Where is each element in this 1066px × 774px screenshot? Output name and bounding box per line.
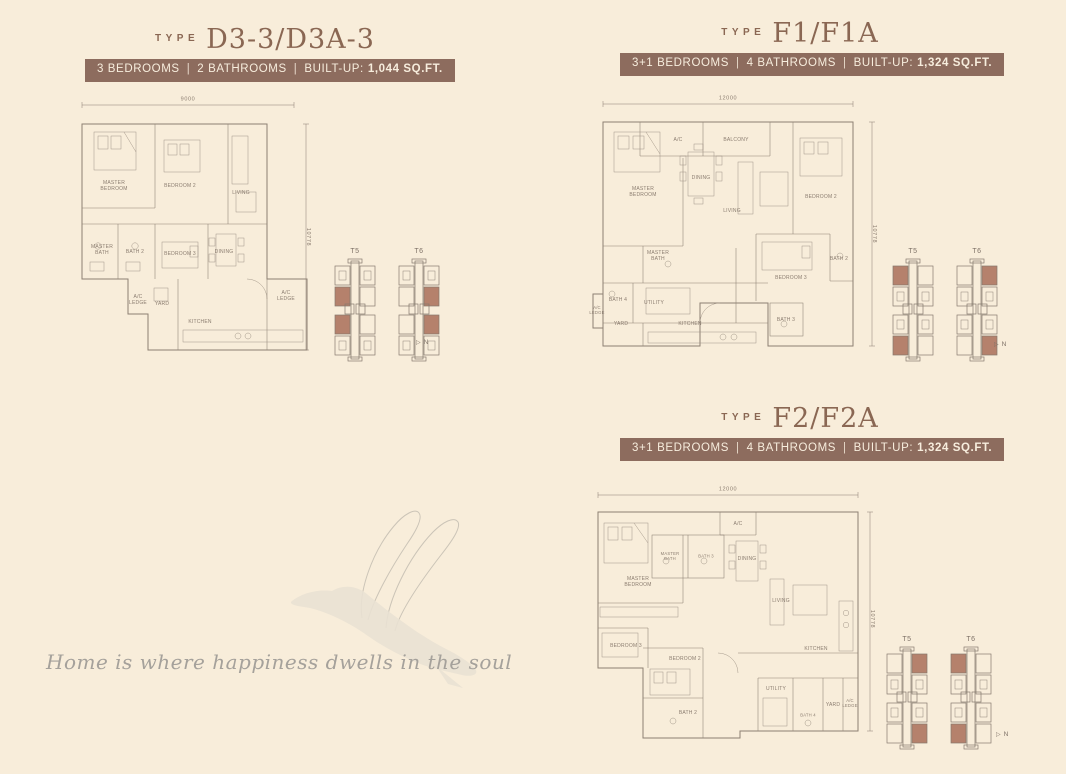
keyplan-tower-t6: T6 (948, 636, 994, 755)
north-label: N (1002, 341, 1008, 348)
plan-title: TYPEF1/F1A (620, 20, 980, 47)
spec-separator: | (294, 63, 298, 75)
keyplan-tower-t5: T5 (332, 248, 378, 367)
keyplan-tower-t6: T6 (954, 248, 1000, 367)
room-label: YARD (826, 702, 840, 708)
room-label: KITCHEN (678, 321, 701, 327)
room-label: BATH 3 (698, 553, 714, 558)
bedrooms-spec: 3 BEDROOMS (97, 63, 180, 75)
room-label: MASTER BEDROOM (97, 180, 131, 193)
bathrooms-spec: 4 BATHROOMS (747, 442, 836, 454)
builtup-value: 1,324 SQ.FT. (917, 57, 992, 69)
type-name: F1/F1A (772, 18, 878, 49)
type-label: TYPE (721, 27, 765, 38)
floorplan-f1: 12000 10778 A/C BALCONY MASTER BEDROOM D… (588, 96, 878, 370)
room-label: BALCONY (723, 137, 748, 143)
room-label: BEDROOM 3 (775, 275, 807, 281)
floorplan-d3: 9000 10778 MASTER BEDROOM BEDROOM 2 LIVI… (78, 96, 313, 368)
room-label: YARD (614, 321, 628, 327)
room-label: MASTER BATH (656, 551, 684, 562)
floorplan-drawing-d3 (78, 96, 313, 368)
spec-badge: 3+1 BEDROOMS|4 BATHROOMS|BUILT-UP:1,324 … (620, 438, 1004, 461)
room-label: A/C LEDGE (128, 294, 148, 307)
north-label: N (1004, 731, 1010, 738)
room-label: A/C LEDGE (588, 305, 606, 316)
north-arrow-icon: ▷ (416, 340, 422, 346)
plan-header-f1: TYPEF1/F1A 3+1 BEDROOMS|4 BATHROOMS|BUIL… (620, 20, 980, 76)
north-arrow-icon: ▷ (996, 732, 1002, 738)
spec-separator: | (843, 57, 847, 69)
keyplan-drawing (884, 646, 930, 750)
builtup-label: BUILT-UP: (854, 57, 914, 69)
room-label: DINING (692, 175, 711, 181)
dimension-height: 10778 (304, 228, 310, 246)
keyplan-drawing (332, 258, 378, 362)
spec-separator: | (187, 63, 191, 75)
spec-separator: | (843, 442, 847, 454)
room-label: A/C LEDGE (274, 290, 298, 303)
type-name: F2/F2A (772, 403, 878, 434)
room-label: MASTER BATH (643, 250, 673, 263)
room-label: KITCHEN (804, 646, 827, 652)
room-label: DINING (738, 556, 757, 562)
floorplan-f2: 12000 10778 A/C MASTER BEDROOM MASTER BA… (588, 483, 878, 750)
room-label: BATH 2 (830, 256, 848, 262)
keyplan-drawing (948, 646, 994, 750)
room-label: BEDROOM 2 (669, 656, 701, 662)
type-name: D3-3/D3A-3 (206, 24, 375, 55)
room-label: BATH 3 (777, 317, 795, 323)
plan-header-f2: TYPEF2/F2A 3+1 BEDROOMS|4 BATHROOMS|BUIL… (620, 405, 980, 461)
tower-label: T5 (332, 248, 378, 255)
room-label: A/C (734, 521, 743, 527)
keyplan-group-f1: T5 T6 ▷N (890, 248, 1016, 368)
plan-title: TYPED3-3/D3A-3 (85, 26, 445, 53)
room-label: MASTER BATH (88, 244, 116, 257)
tower-label: T5 (884, 636, 930, 643)
bedrooms-spec: 3+1 BEDROOMS (632, 57, 729, 69)
spec-badge: 3+1 BEDROOMS|4 BATHROOMS|BUILT-UP:1,324 … (620, 53, 1004, 76)
keyplan-tower-t5: T5 (890, 248, 936, 367)
spec-separator: | (736, 442, 740, 454)
dimension-width: 12000 (719, 487, 737, 493)
north-indicator: ▷N (416, 340, 429, 347)
plan-header-d3: TYPED3-3/D3A-3 3 BEDROOMS|2 BATHROOMS|BU… (85, 26, 445, 82)
dimension-width: 9000 (181, 97, 196, 103)
builtup-label: BUILT-UP: (854, 442, 914, 454)
room-label: LIVING (723, 208, 741, 214)
keyplan-tower-t6: T6 (396, 248, 442, 367)
room-label: BATH 2 (126, 249, 144, 255)
dimension-width: 12000 (719, 96, 737, 102)
room-label: LIVING (232, 190, 250, 196)
builtup-value: 1,324 SQ.FT. (917, 442, 992, 454)
room-label: LIVING (772, 598, 790, 604)
plan-title: TYPEF2/F2A (620, 405, 980, 432)
north-indicator: ▷N (994, 342, 1007, 349)
room-label: YARD (155, 301, 169, 307)
builtup-value: 1,044 SQ.FT. (368, 63, 443, 75)
bathrooms-spec: 4 BATHROOMS (747, 57, 836, 69)
room-label: MASTER BEDROOM (625, 186, 661, 199)
keyplan-drawing (890, 258, 936, 362)
builtup-label: BUILT-UP: (304, 63, 364, 75)
room-label: UTILITY (766, 686, 786, 692)
room-label: A/C (674, 137, 683, 143)
tower-label: T6 (948, 636, 994, 643)
brochure-page: { "page": {"background": "#f8edda"}, "co… (0, 0, 1066, 774)
room-label: BEDROOM 2 (164, 183, 196, 189)
tagline-quote: Home is where happiness dwells in the so… (46, 650, 512, 674)
north-indicator: ▷N (996, 732, 1009, 739)
room-label: DINING (215, 249, 234, 255)
room-label: BATH 4 (800, 712, 816, 717)
type-label: TYPE (155, 33, 199, 44)
keyplan-group-f2: T5 T6 ▷N (884, 636, 1016, 756)
dimension-height: 10778 (868, 610, 874, 628)
type-label: TYPE (721, 412, 765, 423)
north-label: N (424, 339, 430, 346)
spec-separator: | (736, 57, 740, 69)
north-arrow-icon: ▷ (994, 342, 1000, 348)
room-label: KITCHEN (188, 319, 211, 325)
keyplan-tower-t5: T5 (884, 636, 930, 755)
room-label: BATH 4 (607, 297, 629, 303)
room-label: BATH 2 (679, 710, 697, 716)
tower-label: T5 (890, 248, 936, 255)
bathrooms-spec: 2 BATHROOMS (197, 63, 286, 75)
tower-label: T6 (396, 248, 442, 255)
room-label: MASTER BEDROOM (620, 576, 656, 589)
room-label: BEDROOM 3 (610, 643, 642, 649)
room-label: BEDROOM 2 (805, 194, 837, 200)
spec-badge: 3 BEDROOMS|2 BATHROOMS|BUILT-UP:1,044 SQ… (85, 59, 455, 82)
keyplan-group-d3: T5 T6 ▷N (332, 248, 452, 368)
room-label: BEDROOM 3 (164, 251, 196, 257)
tower-label: T6 (954, 248, 1000, 255)
bedrooms-spec: 3+1 BEDROOMS (632, 442, 729, 454)
room-label: UTILITY (644, 300, 664, 306)
dimension-height: 10778 (870, 225, 876, 243)
room-label: A/C LEDGE (840, 698, 860, 709)
